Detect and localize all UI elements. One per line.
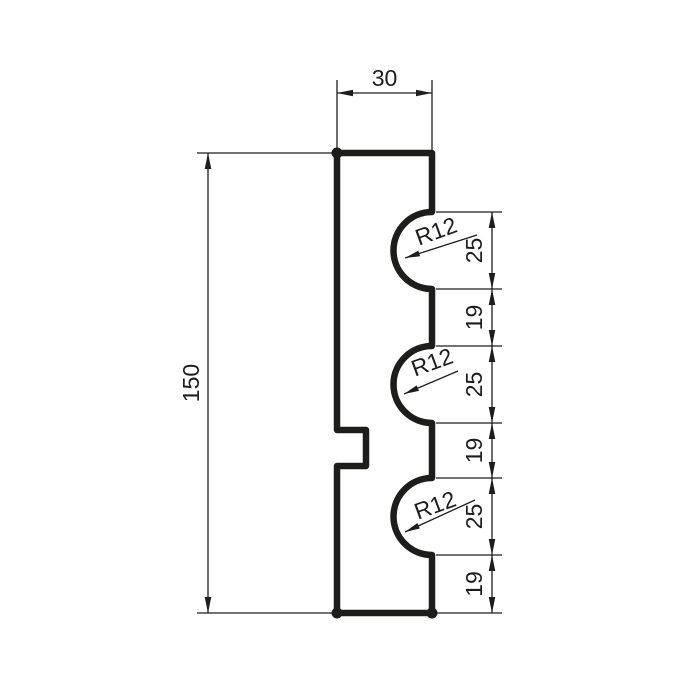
arrowhead [489,597,496,613]
dim-label-segment-19: 19 [461,438,487,464]
radius-leader-arrowhead [404,385,419,394]
extension-lines [197,80,502,613]
arrowhead [489,423,496,439]
dim-label-segment-25: 25 [461,504,487,530]
arrowhead [205,597,212,613]
arrowhead [489,346,496,362]
radius-label-r12: R12 [411,486,460,525]
profile-outline [332,148,438,619]
arrowhead [205,153,212,169]
arrowhead [337,90,353,97]
radius-leader-arrowhead [405,523,420,532]
arrowhead [489,212,496,228]
radius-leader-arrowhead [405,251,420,258]
drawing-canvas: 30150251925192519 R12R12R12 [0,0,686,686]
dim-label-segment-25: 25 [461,372,487,398]
dim-label-height-150: 150 [178,364,204,402]
dimension-arrows [205,90,496,613]
arrowhead [489,273,496,289]
dimension-labels: 30150251925192519 [178,65,487,597]
dim-label-segment-19: 19 [461,571,487,597]
arrowhead [489,539,496,555]
dim-label-width-30: 30 [372,65,398,91]
corner-point-marker [427,608,438,619]
arrowhead [489,462,496,478]
arrowhead [489,330,496,346]
arrowhead [416,90,432,97]
dim-label-segment-19: 19 [461,305,487,331]
arrowhead [489,478,496,494]
arrowhead [489,555,496,571]
molding-profile-outline [337,153,432,613]
arrowhead [489,407,496,423]
arrowhead [489,289,496,305]
technical-drawing: 30150251925192519 R12R12R12 [0,0,686,686]
dim-label-segment-25: 25 [461,238,487,264]
